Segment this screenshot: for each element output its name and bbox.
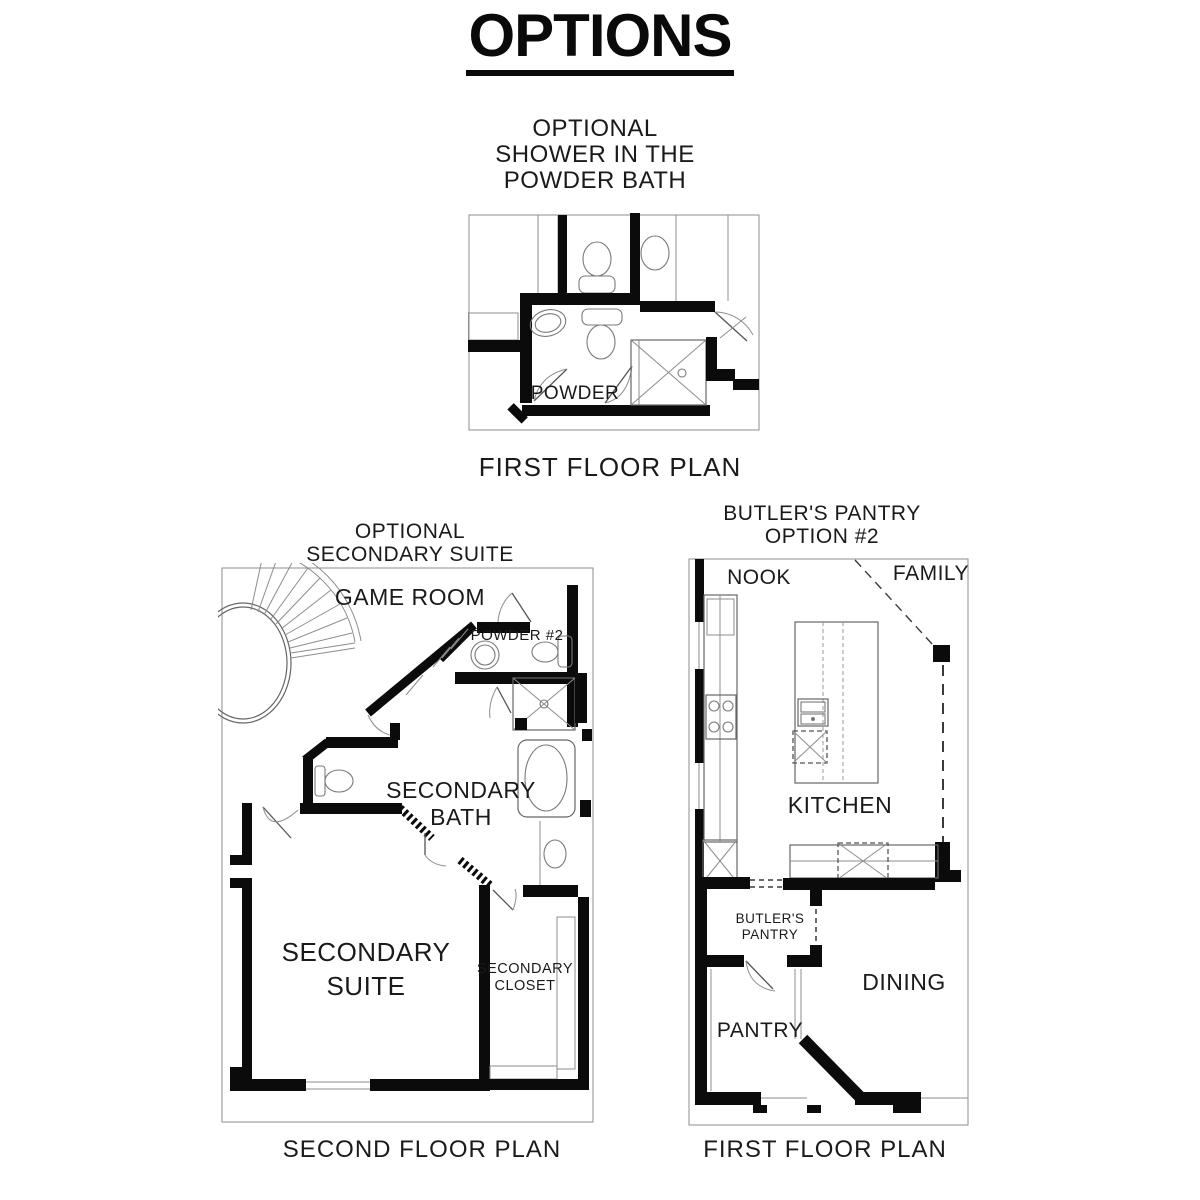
optional-cabinet-icon xyxy=(793,731,827,763)
toilet-icon xyxy=(579,242,615,293)
secondary-suite-heading-line1: OPTIONAL xyxy=(210,520,610,543)
room-label-secondary-bath-line2: BATH xyxy=(430,804,492,830)
secondary-suite-heading: OPTIONAL SECONDARY SUITE xyxy=(210,520,610,566)
room-label-dining: DINING xyxy=(862,969,946,995)
door-swing-icon xyxy=(498,593,531,622)
stairs-icon xyxy=(468,313,520,352)
wall xyxy=(490,1079,589,1090)
wall xyxy=(230,1067,242,1091)
room-label-secondary-bath-line1: SECONDARY xyxy=(386,777,536,803)
shower-icon xyxy=(513,678,575,730)
wall xyxy=(695,877,750,889)
wall xyxy=(640,301,702,312)
butlers-pantry-heading: BUTLER'S PANTRY OPTION #2 xyxy=(622,502,1022,548)
wall xyxy=(803,1039,863,1100)
wall xyxy=(702,301,715,312)
sink-icon xyxy=(527,306,569,340)
column xyxy=(933,645,950,662)
wall xyxy=(893,1105,921,1113)
wall xyxy=(695,1092,761,1105)
plan3-caption: FIRST FLOOR PLAN xyxy=(525,1136,1125,1164)
wall xyxy=(783,878,935,890)
stair-treads-icon xyxy=(406,629,468,695)
room-label-butlers-pantry-line2: PANTRY xyxy=(742,927,799,942)
door-swing-icon xyxy=(746,961,775,991)
wall xyxy=(523,885,578,897)
page-title-row: OPTIONS xyxy=(0,6,1200,76)
door-swing-icon xyxy=(425,833,446,866)
door-swing-icon xyxy=(263,807,298,838)
plan2-border xyxy=(222,568,593,1122)
room-label-butlers-pantry-line1: BUTLER'S xyxy=(736,911,805,926)
wall xyxy=(700,955,744,967)
butlers-pantry-heading-line1: BUTLER'S PANTRY xyxy=(622,502,1022,525)
wall xyxy=(733,379,759,390)
wall xyxy=(479,885,490,1079)
wall xyxy=(242,888,252,1079)
wall xyxy=(520,293,640,305)
wall xyxy=(242,803,252,855)
room-label-secondary-closet-line2: CLOSET xyxy=(494,978,555,994)
wall xyxy=(810,890,822,906)
wall xyxy=(368,625,474,713)
room-label-secondary-suite-line2: SUITE xyxy=(326,971,405,1001)
shower-icon xyxy=(631,340,706,405)
room-label-secondary-closet-line1: SECONDARY xyxy=(477,961,573,977)
pocket-door-icon xyxy=(400,808,432,838)
page-title: OPTIONS xyxy=(466,6,733,76)
room-label-powder2: POWDER #2 xyxy=(471,627,564,644)
sink-icon xyxy=(471,641,499,669)
wall xyxy=(947,870,961,882)
wall xyxy=(326,737,398,748)
wall xyxy=(390,723,400,740)
door-swing-icon xyxy=(493,889,516,910)
cabinet-run-icon xyxy=(704,595,737,842)
room-label-pantry: PANTRY xyxy=(717,1019,803,1042)
cabinet-x-icon xyxy=(703,840,737,882)
butlers-pantry-heading-line2: OPTION #2 xyxy=(622,525,1022,548)
room-label-family: FAMILY xyxy=(893,562,969,585)
wall xyxy=(230,855,252,865)
column xyxy=(807,1105,821,1113)
powder-bath-heading-line2: SHOWER IN THE xyxy=(0,142,1190,168)
plan1-caption: FIRST FLOOR PLAN xyxy=(10,452,1200,483)
pocket-door-icon xyxy=(460,860,490,885)
room-label-secondary-suite-line1: SECONDARY xyxy=(282,937,451,967)
wall xyxy=(630,213,640,305)
room-label-powder: POWDER xyxy=(531,383,620,404)
wall xyxy=(582,729,592,741)
closet-shelves-icon xyxy=(490,1066,557,1079)
wall xyxy=(303,758,313,808)
cooktop-icon xyxy=(706,695,736,739)
wall xyxy=(300,803,402,814)
wall xyxy=(230,878,252,888)
stairs-icon xyxy=(538,215,567,295)
powder-bath-plan-drawing: POWDER xyxy=(468,213,760,432)
wall xyxy=(522,405,710,416)
wall xyxy=(706,369,735,381)
toilet-icon xyxy=(315,766,353,796)
room-label-game-room: GAME ROOM xyxy=(335,584,485,610)
column xyxy=(753,1105,767,1113)
toilet-icon xyxy=(641,236,669,270)
wall xyxy=(305,742,328,760)
wall xyxy=(855,1092,921,1105)
room-label-nook: NOOK xyxy=(727,566,791,589)
door-swing-icon xyxy=(490,687,511,718)
wall xyxy=(580,800,591,817)
wall xyxy=(695,559,707,1095)
powder-bath-heading-line1: OPTIONAL xyxy=(0,116,1190,142)
wall xyxy=(575,673,587,723)
wall xyxy=(370,1079,490,1091)
powder-bath-heading-line3: POWDER BATH xyxy=(0,168,1190,194)
butlers-pantry-plan-drawing: NOOK FAMILY KITCHEN BUTLER'S PANTRY PANT… xyxy=(687,557,970,1135)
wall xyxy=(787,955,822,967)
room-label-kitchen: KITCHEN xyxy=(788,792,892,818)
wall xyxy=(578,897,589,1079)
wall xyxy=(242,1079,306,1091)
closet-shelves-icon xyxy=(557,917,575,1069)
sink-icon xyxy=(544,840,566,868)
powder-bath-heading: OPTIONAL SHOWER IN THE POWDER BATH xyxy=(0,116,1190,194)
toilet-icon xyxy=(582,309,622,359)
options-sheet: OPTIONS OPTIONAL SHOWER IN THE POWDER BA… xyxy=(0,0,1200,1200)
secondary-suite-plan-drawing: GAME ROOM POWDER #2 SECONDARY BATH SECON… xyxy=(218,563,595,1130)
